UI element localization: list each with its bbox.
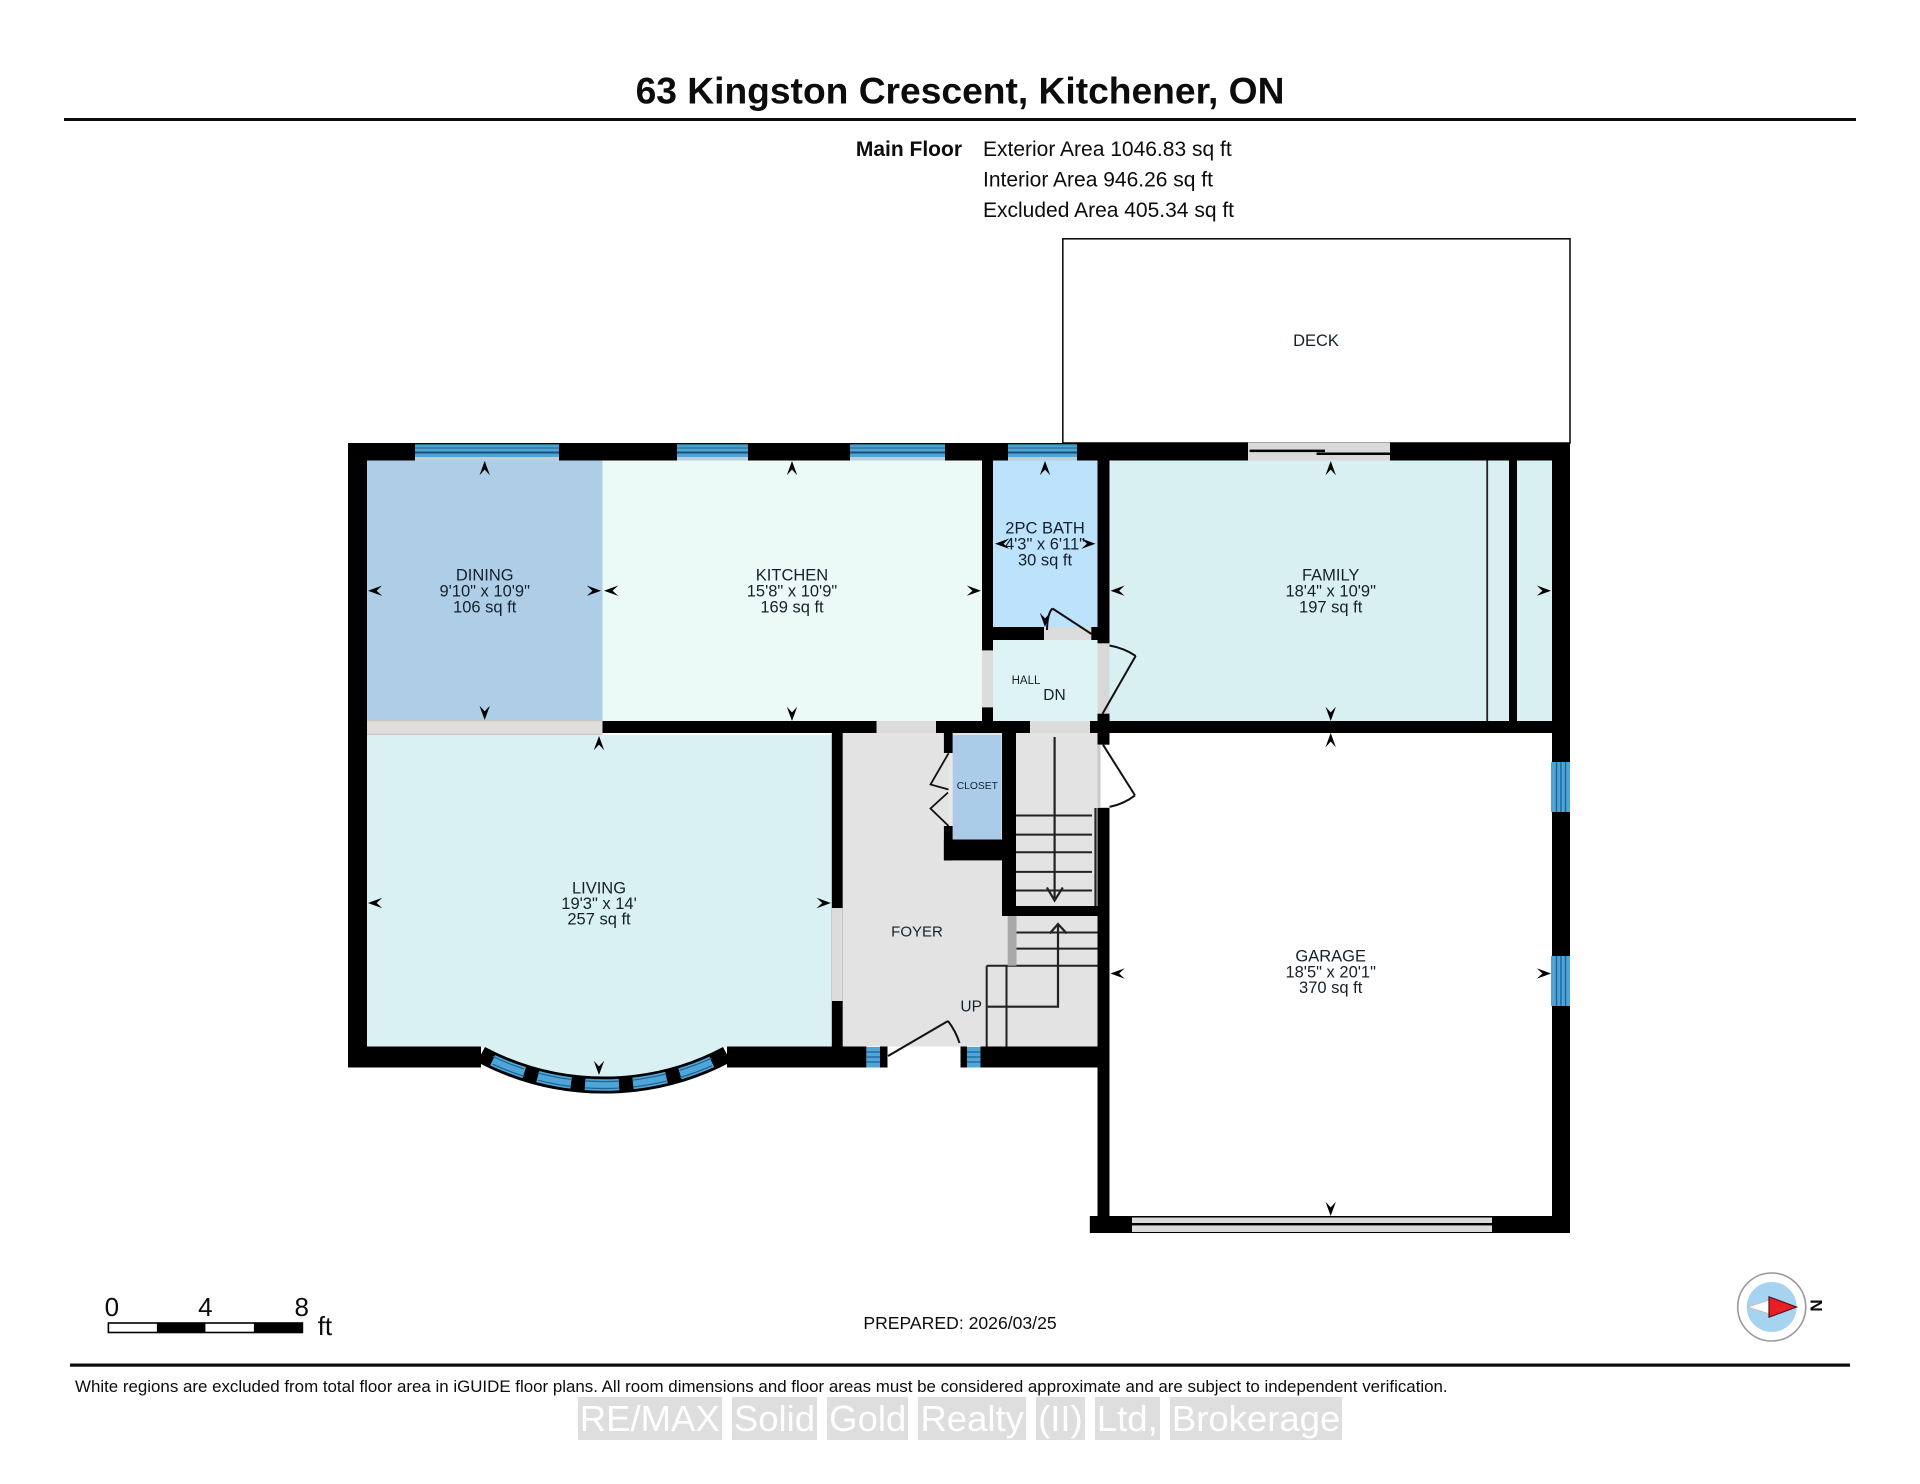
svg-text:Exterior Area 1046.83 sq ft: Exterior Area 1046.83 sq ft xyxy=(983,138,1232,161)
svg-text:ft: ft xyxy=(318,1311,333,1341)
svg-text:CLOSET: CLOSET xyxy=(957,781,999,792)
svg-text:UP: UP xyxy=(960,999,982,1016)
svg-text:8: 8 xyxy=(294,1292,308,1322)
svg-text:106 sq ft: 106 sq ft xyxy=(453,599,517,617)
svg-text:HALL: HALL xyxy=(1012,675,1041,687)
svg-text:FOYER: FOYER xyxy=(891,923,943,940)
svg-text:Interior Area 946.26 sq ft: Interior Area 946.26 sq ft xyxy=(983,169,1213,192)
svg-text:4: 4 xyxy=(198,1292,212,1322)
svg-text:White regions are excluded fro: White regions are excluded from total fl… xyxy=(75,1377,1448,1396)
svg-text:30 sq ft: 30 sq ft xyxy=(1018,552,1073,570)
svg-text:370 sq ft: 370 sq ft xyxy=(1299,979,1363,997)
svg-text:N: N xyxy=(1807,1299,1826,1311)
svg-text:DECK: DECK xyxy=(1293,332,1339,350)
svg-text:169 sq ft: 169 sq ft xyxy=(760,599,824,617)
svg-text:PREPARED: 2026/03/25: PREPARED: 2026/03/25 xyxy=(863,1313,1057,1333)
svg-text:Excluded Area 405.34 sq ft: Excluded Area 405.34 sq ft xyxy=(983,199,1234,222)
svg-text:257 sq ft: 257 sq ft xyxy=(567,911,631,929)
svg-text:Main Floor: Main Floor xyxy=(856,138,962,161)
svg-text:63 Kingston Crescent, Kitchene: 63 Kingston Crescent, Kitchener, ON xyxy=(636,70,1285,112)
svg-text:0: 0 xyxy=(105,1292,119,1322)
svg-text:197 sq ft: 197 sq ft xyxy=(1299,599,1363,617)
svg-text:DN: DN xyxy=(1043,687,1065,704)
